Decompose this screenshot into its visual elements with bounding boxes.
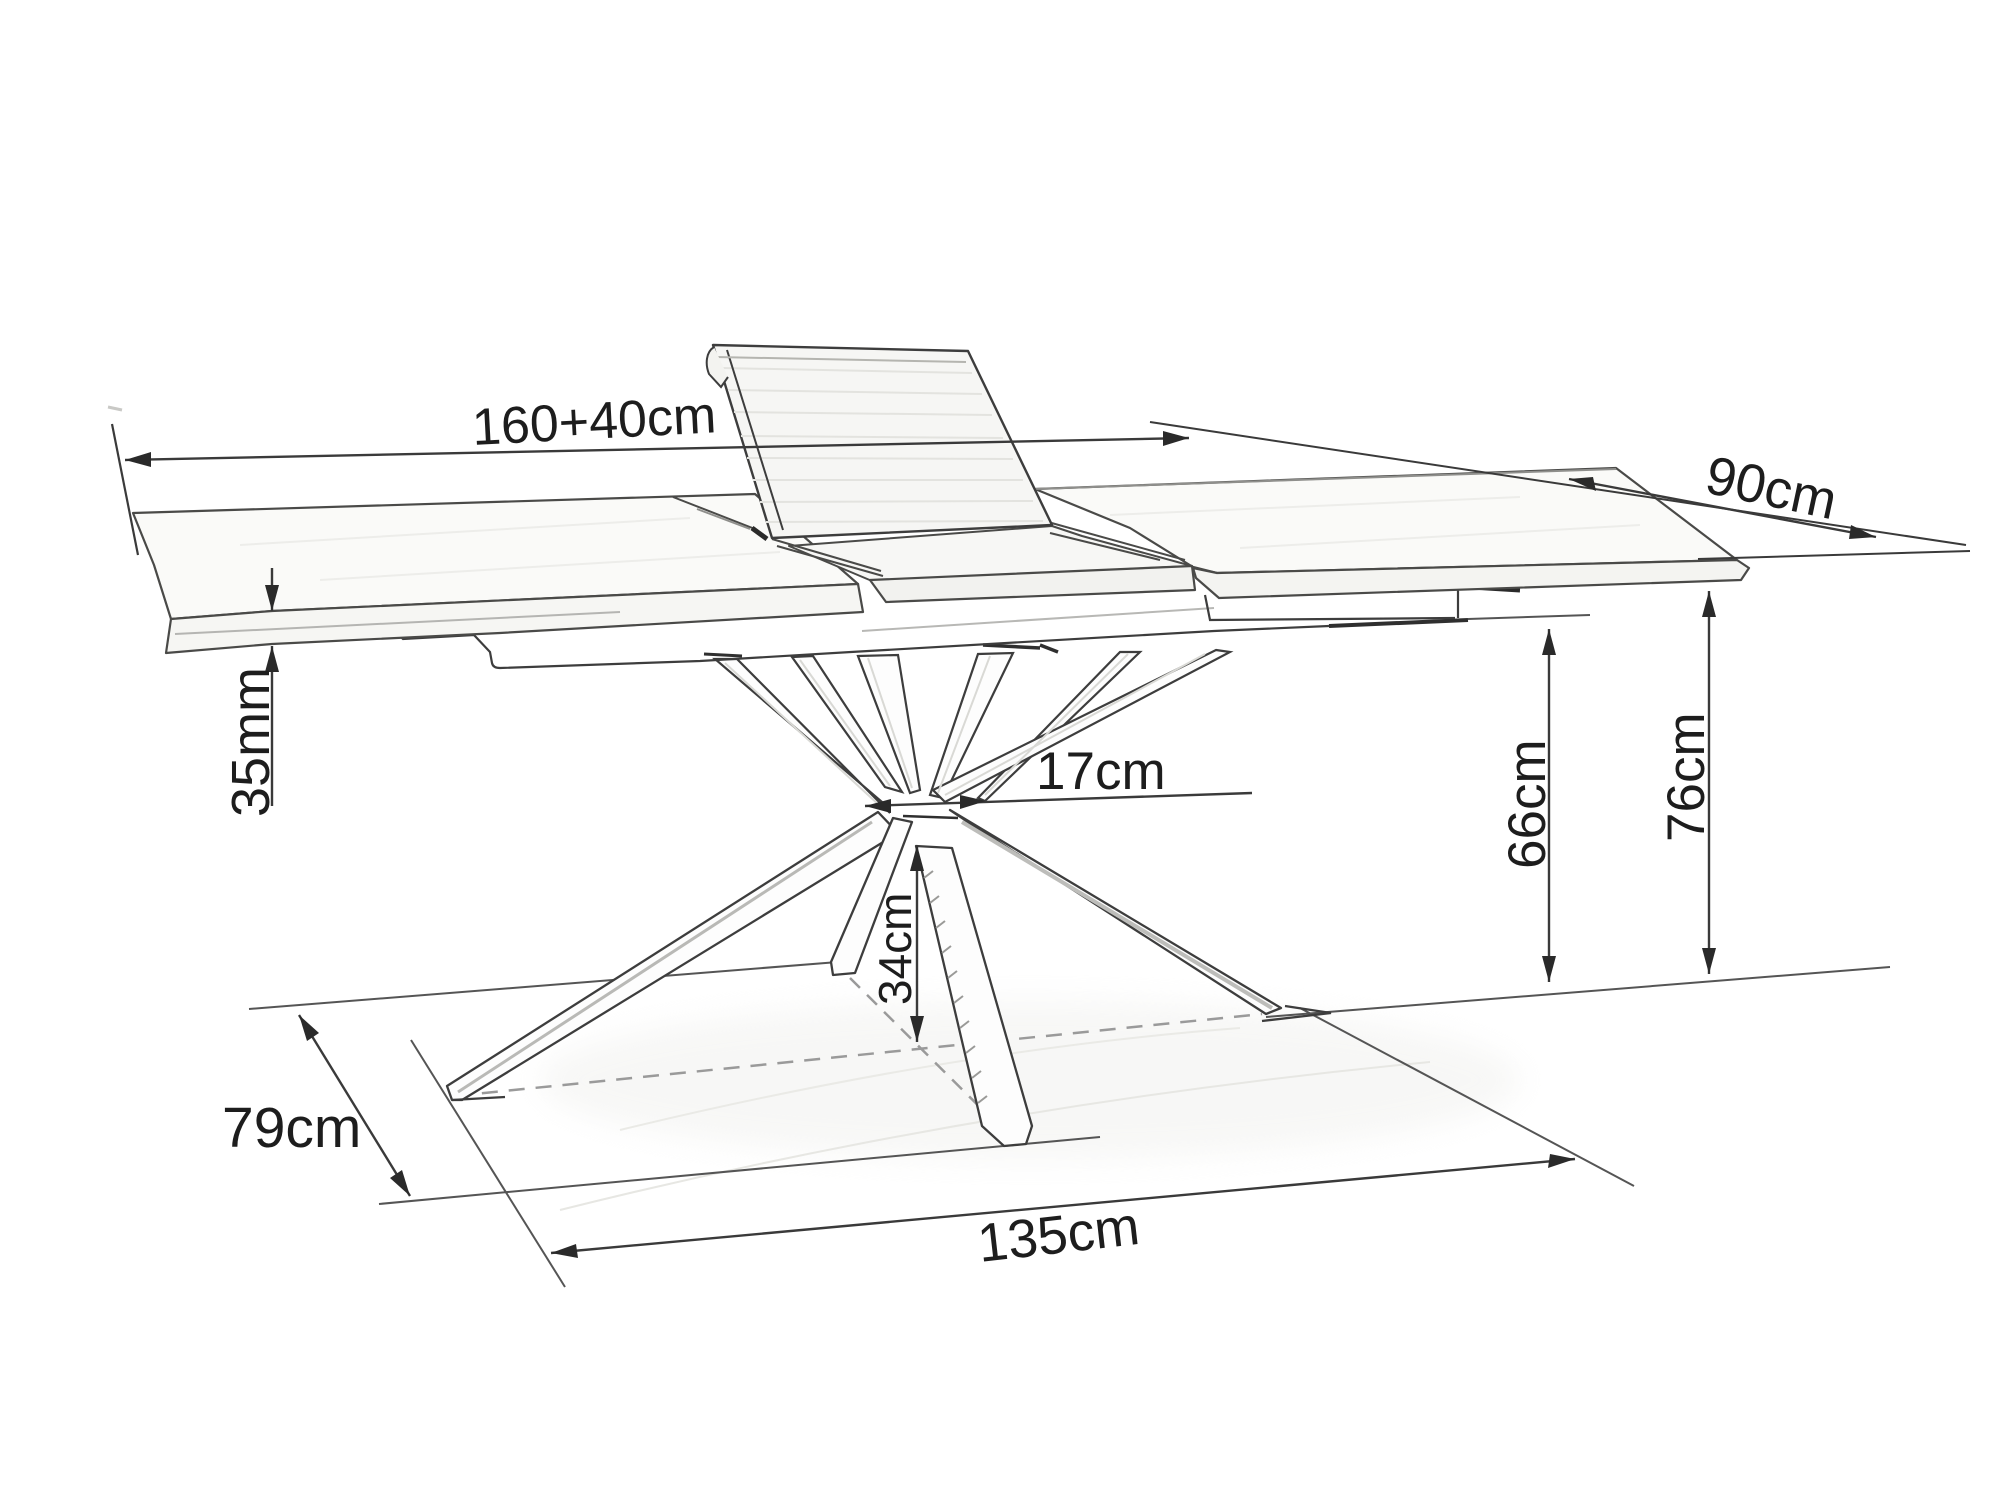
- svg-text:79cm: 79cm: [222, 1096, 361, 1160]
- svg-text:66cm: 66cm: [1498, 739, 1557, 869]
- svg-text:76cm: 76cm: [1657, 712, 1716, 842]
- svg-text:17cm: 17cm: [1036, 742, 1166, 801]
- svg-text:35mm: 35mm: [221, 667, 281, 817]
- svg-text:34cm: 34cm: [869, 893, 921, 1005]
